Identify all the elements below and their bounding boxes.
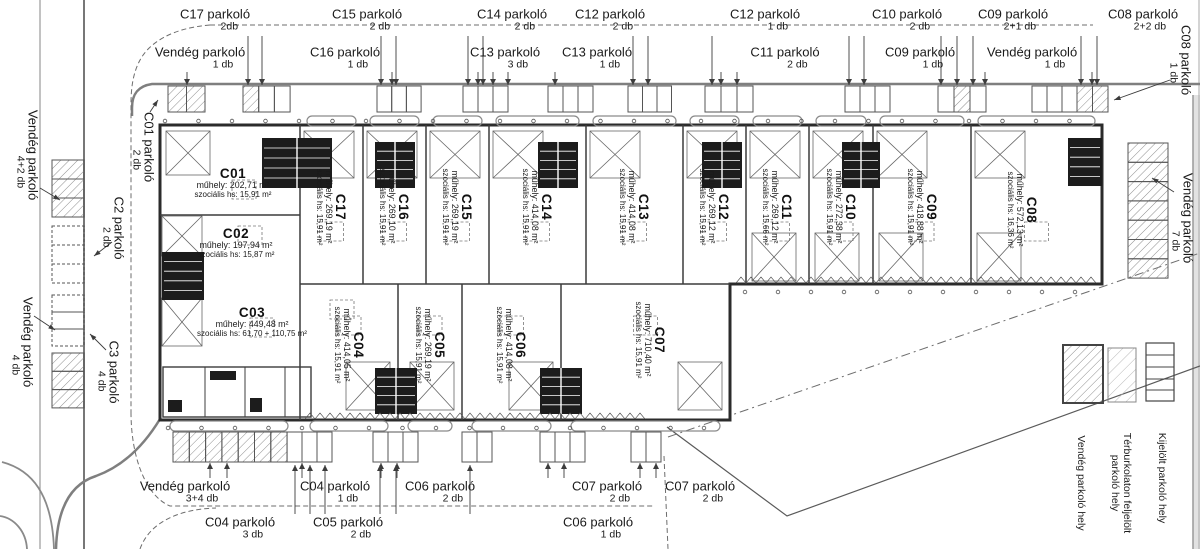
parking-stall (493, 86, 508, 112)
parking-stall (1128, 162, 1168, 181)
parking-stall (392, 86, 407, 112)
parking-label-name: C11 parkoló (750, 46, 819, 60)
parking-stall (52, 312, 84, 329)
parking-label: C13 parkoló1 db (562, 46, 632, 71)
parking-stall (52, 295, 84, 312)
parking-label-count: 2 db (572, 493, 642, 504)
unit-muhely-area: műhely: 269,19 m² (323, 169, 333, 246)
parking-stall (406, 86, 421, 112)
legend-swatch-vendeg (1063, 345, 1103, 403)
parking-stall (388, 432, 403, 462)
plan-linework (0, 0, 1200, 549)
parking-stall (222, 432, 238, 462)
parking-label-count: 2 db (575, 21, 645, 32)
unit-muhely-area: műhely: 269,12 m² (769, 169, 779, 246)
site-plan: C17 parkoló2dbC15 parkoló2 dbC14 parkoló… (0, 0, 1200, 549)
legend-label: Kijelölt parkoló hely (1156, 418, 1168, 538)
parking-label-name: C13 parkoló (562, 46, 632, 60)
parking-label-count: 1 db (1168, 25, 1179, 95)
parking-stall (845, 86, 860, 112)
parking-stall (463, 86, 478, 112)
parking-label: C14 parkoló2 db (477, 8, 547, 33)
unit-label-c03: C03műhely: 449,48 m²szociális hs: 61,70 … (197, 305, 307, 339)
legend-label: Térburkolaton feljelölt parkoló hely (1109, 423, 1133, 543)
unit-muhely-area: műhely: 272,38 m² (833, 169, 843, 246)
parking-label: C04 parkoló1 db (300, 480, 370, 505)
unit-id: C09 (924, 169, 939, 246)
unit-id: C06 (513, 307, 528, 384)
parking-stall (52, 264, 84, 283)
parking-label-name: C3 parkoló (107, 341, 121, 404)
parking-label-name: C06 parkoló (405, 480, 475, 494)
parking-label: C01 parkoló2 db (131, 112, 156, 182)
parking-label-name: C04 parkoló (300, 480, 370, 494)
unit-szocialis-area: szociális hs: 15,66 m² (760, 169, 769, 246)
unit-id: C12 (716, 169, 731, 246)
unit-id: C11 (779, 169, 794, 246)
parking-label-name: Vendég parkoló (987, 46, 1077, 60)
parking-label-name: C07 parkoló (665, 480, 735, 494)
parking-stall (403, 432, 418, 462)
unit-label-c15: C15műhely: 269,19 m²szociális hs: 15,91 … (440, 169, 474, 246)
parking-stall (377, 86, 392, 112)
parking-label-count: 1 db (885, 59, 955, 70)
unit-id: C16 (396, 169, 411, 246)
parking-stall (938, 86, 954, 112)
unit-id: C05 (432, 307, 447, 384)
unit-label-c14: C14műhely: 414,08 m²szociális hs: 15,91 … (520, 169, 554, 246)
unit-id: C04 (351, 307, 366, 384)
parking-stall (570, 432, 585, 462)
stair-core (1068, 138, 1102, 186)
parking-stall (302, 432, 317, 462)
parking-label-count: 1 db (730, 21, 800, 32)
parking-label: C07 parkoló2 db (572, 480, 642, 505)
parking-stall (52, 198, 84, 217)
unit-szocialis-area: szociális hs: 15,91 m² (440, 169, 449, 246)
parking-stall (1128, 220, 1168, 239)
parking-stall (373, 432, 388, 462)
parking-label-name: C01 parkoló (142, 112, 156, 182)
parking-stall (1047, 86, 1062, 112)
parking-label: C07 parkoló2 db (665, 480, 735, 505)
unit-szocialis-area: szociális hs: 15,91 m² (377, 169, 386, 246)
parking-stall (555, 432, 570, 462)
parking-label-name: Vendég parkoló (26, 110, 40, 200)
parking-stall (628, 86, 643, 112)
parking-stall (52, 371, 84, 389)
parking-label-name: C10 parkoló (872, 8, 942, 22)
parking-label: C09 parkoló1 db (885, 46, 955, 71)
unit-label-c09: C09műhely: 418,88 m²szociális hs: 15,91 … (905, 169, 939, 246)
parking-label-count: 3+4 db (140, 493, 230, 504)
parking-label-name: C15 parkoló (332, 8, 402, 22)
parking-stall (1032, 86, 1047, 112)
parking-stall (548, 86, 563, 112)
parking-label: Vendég parkoló4 db (10, 297, 35, 387)
parking-stall (563, 86, 578, 112)
unit-szocialis-area: szociális hs: 16,36 m² (1005, 172, 1014, 249)
unit-szocialis-area: szociális hs: 15,91 m² (824, 169, 833, 246)
parking-stall (52, 226, 84, 245)
unit-szocialis-area: szociális hs: 15,91 m² (697, 169, 706, 246)
parking-label-count: 2 db (665, 493, 735, 504)
unit-szocialis-area: szociális hs: 15,91 m² (413, 307, 422, 384)
unit-label-c04: C04műhely: 414,05 m²szociális hs: 15,91 … (332, 307, 366, 384)
parking-label: Vendég parkoló7 db (1170, 173, 1195, 263)
parking-label: C10 parkoló2 db (872, 8, 942, 33)
parking-stall (643, 86, 658, 112)
parking-label-name: C09 parkoló (885, 46, 955, 60)
parking-label: C08 parkoló1 db (1168, 25, 1193, 95)
parking-stall (478, 86, 493, 112)
parking-stall (243, 86, 259, 112)
parking-label-count: 2 db (750, 59, 819, 70)
parking-stall (52, 329, 84, 346)
parking-stall (189, 432, 205, 462)
unit-id: C07 (652, 302, 667, 379)
legend-label: Vendég parkoló hely (1075, 423, 1087, 543)
parking-label-name: Vendég parkoló (1181, 173, 1195, 263)
parking-label-name: C12 parkoló (730, 8, 800, 22)
parking-stall (52, 160, 84, 179)
parking-stall (970, 86, 986, 112)
parking-label: C16 parkoló1 db (310, 46, 380, 71)
parking-label-name: C16 parkoló (310, 46, 380, 60)
unit-label-c17: C17műhely: 269,19 m²szociális hs: 15,91 … (314, 169, 348, 246)
parking-stall (646, 432, 661, 462)
parking-stall (1128, 259, 1168, 278)
parking-stall (737, 86, 753, 112)
legend-swatch-kijelolt (1146, 343, 1174, 401)
parking-label: C11 parkoló2 db (750, 46, 819, 71)
parking-label-count: 3 db (470, 59, 540, 70)
unit-szocialis-area: szociális hs: 15,91 m² (195, 191, 272, 200)
parking-label: Vendég parkoló1 db (987, 46, 1077, 71)
parking-label-count: 2+1 db (978, 21, 1048, 32)
parking-stall (1062, 86, 1077, 112)
parking-stall (274, 86, 290, 112)
parking-label-name: C13 parkoló (470, 46, 540, 60)
parking-stall (1077, 86, 1093, 112)
unit-muhely-area: műhely: 269,19 m² (449, 169, 459, 246)
unit-muhely-area: műhely: 269,10 m² (386, 169, 396, 246)
unit-szocialis-area: szociális hs: 15,91 m² (332, 307, 341, 384)
parking-label-count: 4 db (96, 341, 107, 404)
unit-id: C03 (197, 305, 307, 320)
unit-id: C13 (636, 169, 651, 246)
unit-muhely-area: műhely: 414,05 m² (341, 307, 351, 384)
parking-stall (1093, 86, 1109, 112)
parking-label-name: C06 parkoló (563, 516, 633, 530)
parking-stall (462, 432, 477, 462)
parking-label: C3 parkoló4 db (96, 341, 121, 404)
unit-label-c02: C02műhely: 197,94 m²szociális hs: 15,87 … (198, 226, 275, 260)
parking-label: C12 parkoló1 db (730, 8, 800, 33)
parking-label: C06 parkoló1 db (563, 516, 633, 541)
parking-label-name: C08 parkoló (1108, 8, 1178, 22)
parking-stall (540, 432, 555, 462)
parking-label: C04 parkoló3 db (205, 516, 275, 541)
parking-stall (1128, 143, 1168, 162)
parking-stall (259, 86, 275, 112)
parking-label-name: Vendég parkoló (155, 46, 245, 60)
parking-stall (173, 432, 189, 462)
unit-id: C02 (198, 226, 275, 241)
parking-label-count: 2 db (872, 21, 942, 32)
parking-stall (206, 432, 222, 462)
unit-id: C15 (459, 169, 474, 246)
parking-stall (631, 432, 646, 462)
parking-label-name: C05 parkoló (313, 516, 383, 530)
unit-szocialis-area: szociális hs: 15,91 m² (905, 169, 914, 246)
parking-label: C17 parkoló2db (180, 8, 250, 33)
parking-label: C12 parkoló2 db (575, 8, 645, 33)
parking-stall (721, 86, 737, 112)
unit-muhely-area: műhely: 414,08 m² (529, 169, 539, 246)
parking-stall (52, 179, 84, 198)
parking-stall (168, 86, 187, 112)
unit-szocialis-area: szociális hs: 15,91 m² (314, 169, 323, 246)
parking-label-name: C12 parkoló (575, 8, 645, 22)
parking-stall (875, 86, 890, 112)
unit-muhely-area: műhely: 269,12 m² (706, 169, 716, 246)
parking-label: C05 parkoló2 db (313, 516, 383, 541)
parking-label-name: C14 parkoló (477, 8, 547, 22)
legend-swatch-terburkolat (1108, 348, 1136, 402)
unit-label-c05: C05műhely: 269,19 m²szociális hs: 15,91 … (413, 307, 447, 384)
parking-stall (52, 245, 84, 264)
unit-label-c16: C16műhely: 269,10 m²szociális hs: 15,91 … (377, 169, 411, 246)
unit-id: C17 (333, 169, 348, 246)
unit-id: C14 (539, 169, 554, 246)
parking-label-count: 4+2 db (15, 110, 26, 200)
parking-label-count: 2 db (332, 21, 402, 32)
parking-label-name: C09 parkoló (978, 8, 1048, 22)
parking-label-count: 2 db (101, 197, 112, 260)
unit-id: C01 (195, 166, 272, 181)
unit-muhely-area: műhely: 572,13 m² (1014, 172, 1024, 249)
parking-stall (954, 86, 970, 112)
unit-szocialis-area: szociális hs: 15,91 m² (633, 302, 642, 379)
parking-stall (238, 432, 254, 462)
parking-label: Vendég parkoló1 db (155, 46, 245, 71)
parking-label-count: 4 db (10, 297, 21, 387)
parking-stall (477, 432, 492, 462)
parking-label-count: 1 db (987, 59, 1077, 70)
parking-label-name: Vendég parkoló (140, 480, 230, 494)
parking-stall (1128, 240, 1168, 259)
parking-label-count: 2 db (405, 493, 475, 504)
parking-stall (705, 86, 721, 112)
parking-label-count: 2 db (313, 529, 383, 540)
parking-label-count: 1 db (310, 59, 380, 70)
unit-szocialis-area: szociális hs: 15,91 m² (494, 307, 503, 384)
parking-stall (317, 432, 332, 462)
parking-label-count: 1 db (300, 493, 370, 504)
parking-stall (52, 390, 84, 408)
unit-label-c06: C06műhely: 414,08 m²szociális hs: 15,91 … (494, 307, 528, 384)
parking-stall (52, 353, 84, 371)
parking-label-count: 2 db (477, 21, 547, 32)
unit-id: C08 (1024, 172, 1039, 249)
unit-szocialis-area: szociális hs: 15,91 m² (617, 169, 626, 246)
parking-label-name: Vendég parkoló (21, 297, 35, 387)
parking-label-count: 1 db (563, 529, 633, 540)
parking-label-count: 7 db (1170, 173, 1181, 263)
parking-label: Vendég parkoló3+4 db (140, 480, 230, 505)
parking-stall (657, 86, 672, 112)
parking-label-name: C04 parkoló (205, 516, 275, 530)
parking-stall (271, 432, 287, 462)
unit-label-c08: C08műhely: 572,13 m²szociális hs: 16,36 … (1005, 172, 1039, 249)
unit-szocialis-area: szociális hs: 61,70 + 110,75 m² (197, 330, 307, 339)
unit-muhely-area: műhely: 710,40 m² (642, 302, 652, 379)
unit-muhely-area: műhely: 414,08 m² (503, 307, 513, 384)
parking-stall (187, 86, 206, 112)
parking-label: C2 parkoló2 db (101, 197, 126, 260)
unit-szocialis-area: szociális hs: 15,87 m² (198, 251, 275, 260)
parking-label-count: 2db (180, 21, 250, 32)
unit-label-c12: C12műhely: 269,12 m²szociális hs: 15,91 … (697, 169, 731, 246)
parking-stall (255, 432, 271, 462)
parking-label-name: C17 parkoló (180, 8, 250, 22)
parking-label-count: 1 db (562, 59, 632, 70)
parking-label-name: C07 parkoló (572, 480, 642, 494)
unit-muhely-area: műhely: 269,19 m² (422, 307, 432, 384)
unit-muhely-area: műhely: 418,88 m² (914, 169, 924, 246)
parking-label: Vendég parkoló4+2 db (15, 110, 40, 200)
unit-szocialis-area: szociális hs: 15,91 m² (520, 169, 529, 246)
parking-stall (860, 86, 875, 112)
parking-label: C15 parkoló2 db (332, 8, 402, 33)
parking-stall (287, 432, 302, 462)
parking-label-count: 1 db (155, 59, 245, 70)
parking-label-name: C08 parkoló (1179, 25, 1193, 95)
parking-stall (1128, 201, 1168, 220)
unit-label-c13: C13műhely: 414,08 m²szociális hs: 15,91 … (617, 169, 651, 246)
parking-label: C09 parkoló2+1 db (978, 8, 1048, 33)
parking-label-count: 3 db (205, 529, 275, 540)
parking-stall (578, 86, 593, 112)
unit-label-c01: C01műhely: 202,71 m²szociális hs: 15,91 … (195, 166, 272, 200)
unit-id: C10 (843, 169, 858, 246)
unit-label-c07: C07műhely: 710,40 m²szociális hs: 15,91 … (633, 302, 667, 379)
unit-muhely-area: műhely: 414,08 m² (626, 169, 636, 246)
unit-label-c10: C10műhely: 272,38 m²szociális hs: 15,91 … (824, 169, 858, 246)
parking-label: C06 parkoló2 db (405, 480, 475, 505)
unit-label-c11: C11műhely: 269,12 m²szociális hs: 15,66 … (760, 169, 794, 246)
parking-label: C13 parkoló3 db (470, 46, 540, 71)
parking-label-name: C2 parkoló (112, 197, 126, 260)
parking-label-count: 2 db (131, 112, 142, 182)
